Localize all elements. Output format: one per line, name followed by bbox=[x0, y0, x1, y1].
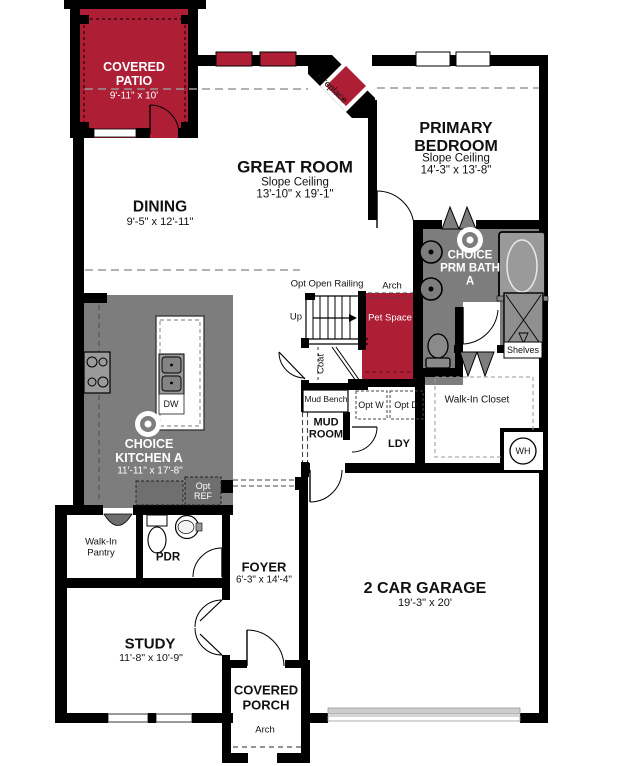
covered-patio-region bbox=[70, 6, 198, 138]
coat-closet bbox=[318, 347, 360, 381]
porch-walls bbox=[222, 630, 310, 763]
garage-door bbox=[328, 708, 520, 721]
floor-plan-drawing bbox=[0, 0, 640, 766]
pet-space-region bbox=[362, 293, 415, 385]
floor-plan: COVERED PATIO 9'-11" x 10' GREAT ROOM Sl… bbox=[0, 0, 640, 766]
laundry-appliances bbox=[356, 391, 423, 419]
pdr-fixtures bbox=[147, 515, 202, 553]
pantry-door-fan bbox=[104, 514, 132, 526]
kitchen-choice-icon bbox=[135, 411, 161, 437]
bath-choice-icon bbox=[457, 227, 483, 253]
mud-bench-box bbox=[303, 390, 348, 412]
